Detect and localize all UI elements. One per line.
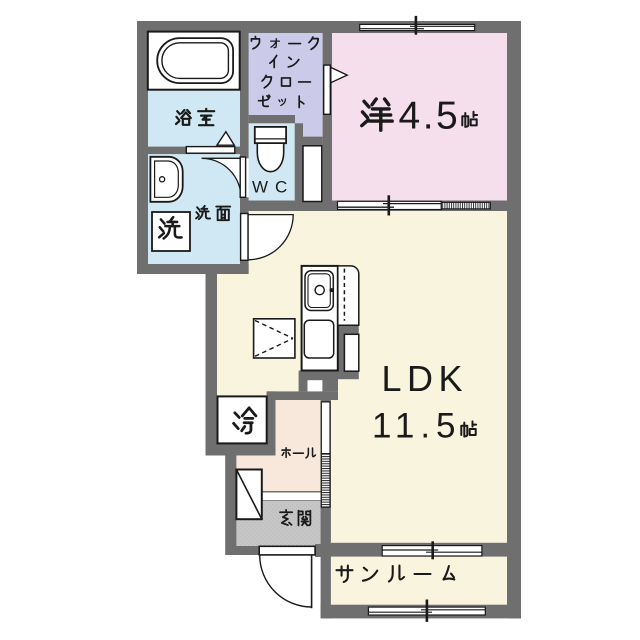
svg-text:11.5: 11.5 [372, 406, 462, 445]
svg-text:WC: WC [252, 177, 294, 196]
svg-text:4.5: 4.5 [399, 95, 461, 138]
svg-text:LDK: LDK [382, 358, 469, 399]
